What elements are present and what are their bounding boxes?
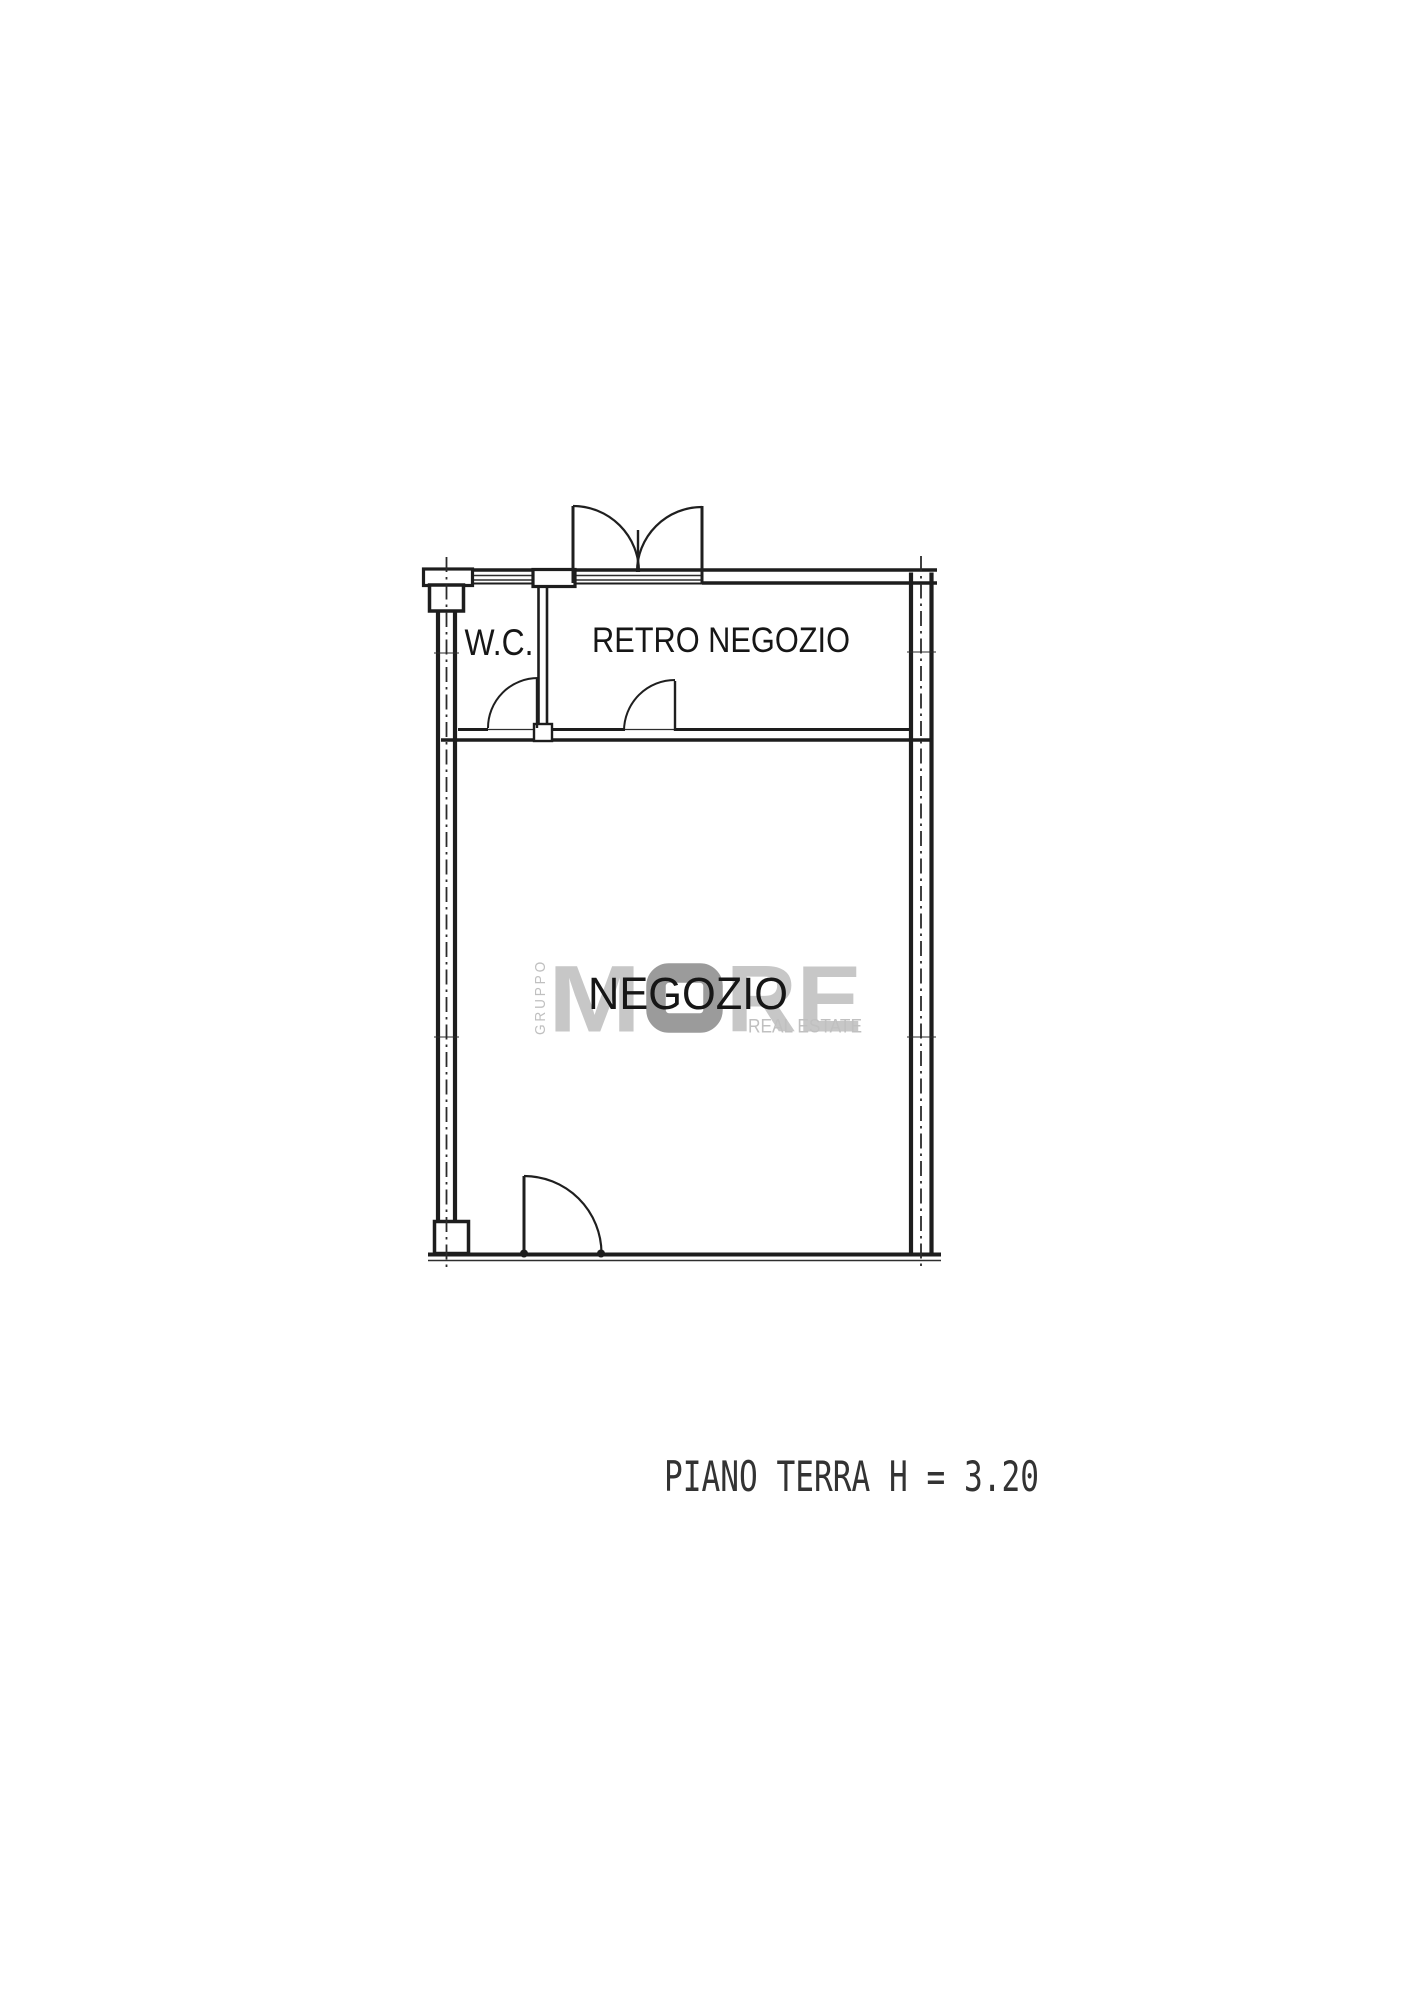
watermark-tagline-real-estate: REAL ESTATE bbox=[748, 1017, 862, 1038]
doors bbox=[488, 506, 702, 1258]
watermark-gruppo-vertical-text: GRUPPO bbox=[533, 959, 549, 1035]
entrance-door-jamb-dot bbox=[597, 1250, 605, 1258]
floor-caption: PIANO TERRA H = 3.20 bbox=[664, 1452, 1039, 1501]
wc-door bbox=[488, 678, 538, 728]
top-wall bbox=[423, 569, 937, 587]
partition-wall-cap bbox=[533, 570, 575, 587]
floor-plan-drawing: GRUPPO M RE REAL ESTATE bbox=[0, 0, 1412, 2000]
room-label-negozio: NEGOZIO bbox=[588, 968, 788, 1019]
back-room-door bbox=[624, 680, 675, 731]
entrance-door-hinge-dot bbox=[520, 1250, 528, 1258]
room-label-wc: W.C. bbox=[465, 622, 534, 663]
walls bbox=[423, 569, 941, 1261]
middle-wall bbox=[441, 730, 932, 741]
left-wall-bottom-column bbox=[435, 1222, 469, 1254]
left-wall bbox=[430, 585, 469, 1254]
entrance-door bbox=[520, 1176, 605, 1258]
bottom-wall bbox=[428, 1255, 941, 1261]
room-label-retro-negozio: RETRO NEGOZIO bbox=[592, 621, 850, 660]
top-left-wall-cap bbox=[424, 569, 473, 586]
